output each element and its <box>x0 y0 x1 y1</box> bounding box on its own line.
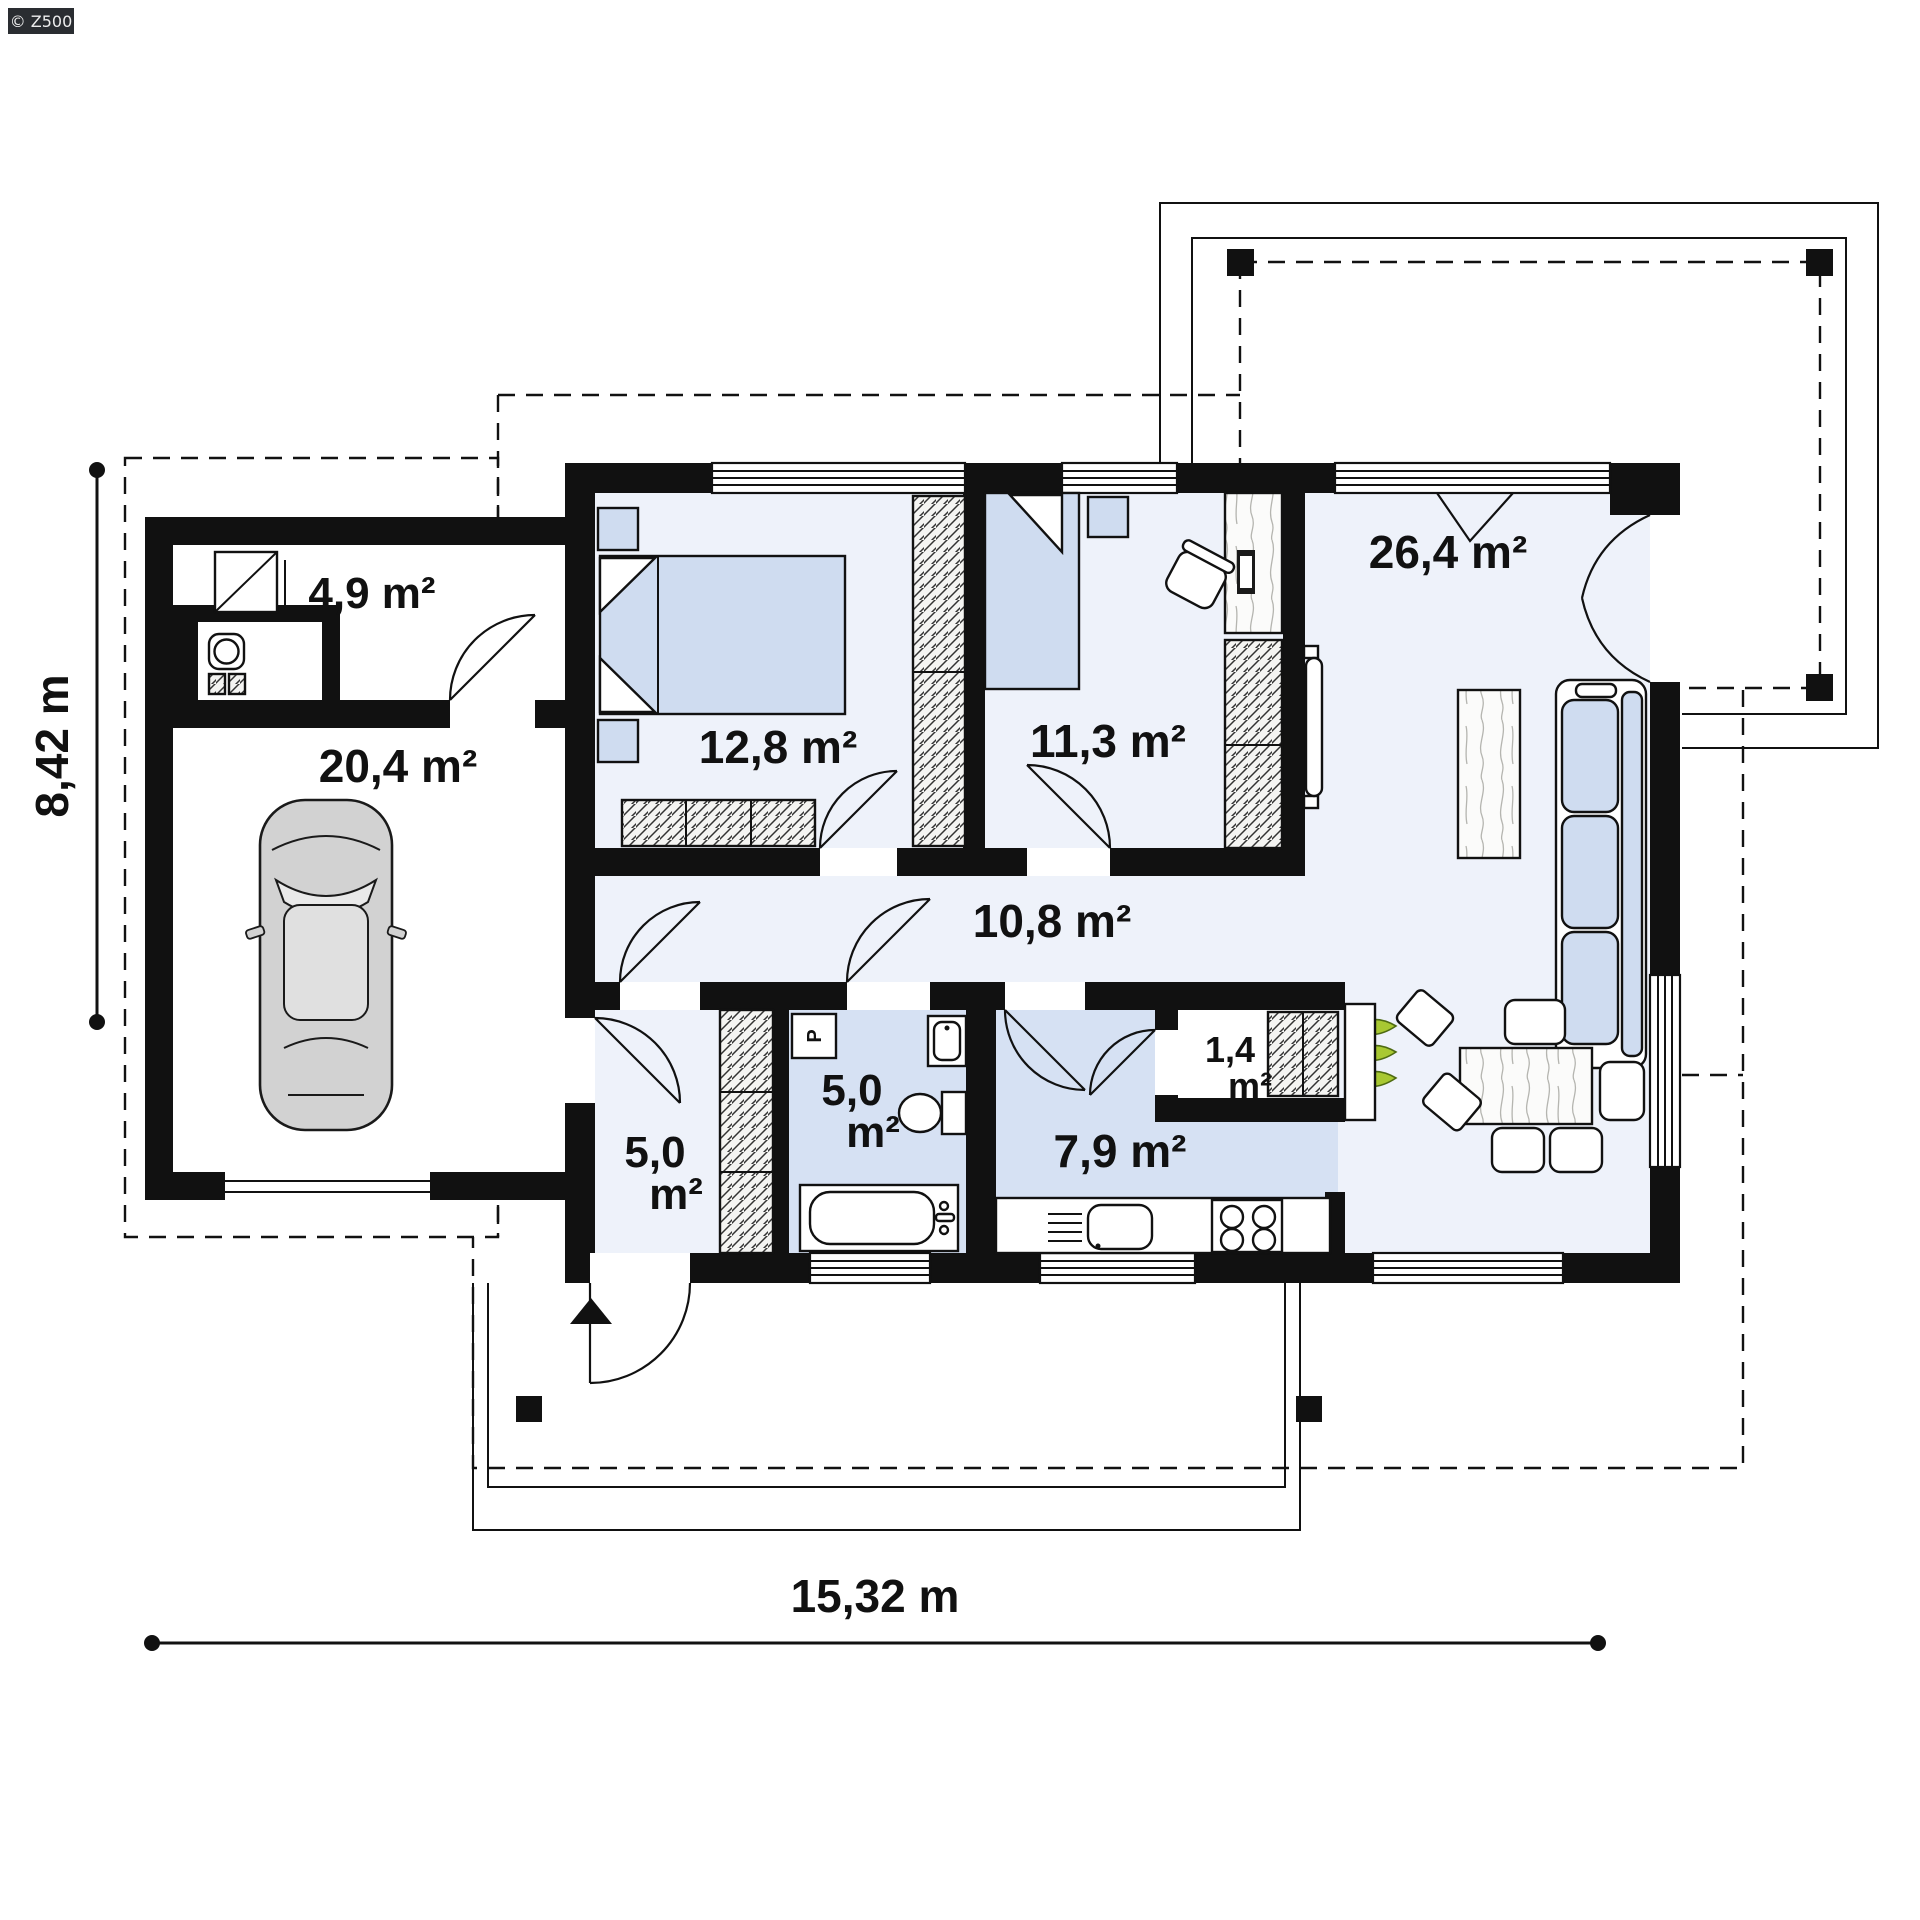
stove-icon <box>1212 1200 1282 1252</box>
corner-window-post <box>1610 493 1678 515</box>
dimension-bottom-label: 15,32 m <box>791 1570 960 1622</box>
terrace-column <box>1227 249 1254 276</box>
room-label-pantry-1: 1,4 <box>1205 1029 1255 1070</box>
garage-wall-top <box>145 517 595 545</box>
bathtub-icon <box>800 1185 958 1251</box>
coffee-table-icon <box>1458 690 1520 858</box>
opening-bedroom-door <box>820 848 897 876</box>
washing-machine-label: P <box>804 1029 826 1042</box>
opening-entrance-door <box>590 1253 690 1283</box>
radiator-icon <box>1304 646 1322 808</box>
room-label-bathroom-2: m² <box>846 1108 900 1157</box>
opening-kitchen-door <box>1005 982 1085 1010</box>
room-label-hall-2: m² <box>649 1170 703 1219</box>
single-bed-icon <box>985 493 1079 689</box>
terrace-column <box>1806 249 1833 276</box>
porch-slab-edge <box>488 1283 1285 1487</box>
sink-icon <box>928 1016 966 1066</box>
dining-window-icon <box>1373 1253 1563 1283</box>
terrace-column <box>1806 674 1833 701</box>
hall-room <box>720 1010 773 1253</box>
opening-garage-gate <box>225 1172 430 1200</box>
porch-column <box>516 1396 542 1422</box>
watermark: © Z500 <box>8 8 74 34</box>
wall-bedroom-office <box>963 493 985 848</box>
opening-bathroom-door <box>847 982 930 1010</box>
room-label-living: 26,4 m² <box>1369 526 1528 578</box>
monitor-icon <box>1237 550 1255 594</box>
dining-chair-icon <box>1600 1062 1644 1120</box>
opening-pantry-door <box>1155 1030 1178 1095</box>
room-label-kitchen: 7,9 m² <box>1054 1125 1187 1177</box>
kitchen-room <box>996 1198 1330 1253</box>
dining-chair-icon <box>1492 1128 1544 1172</box>
watermark-label: © Z500 <box>10 12 73 31</box>
meter-icon <box>209 674 225 694</box>
opening-utility-door <box>450 700 535 728</box>
boiler-icon <box>209 634 244 669</box>
office-window-icon <box>1062 463 1177 493</box>
opening-office-door <box>1027 848 1110 876</box>
wardrobe-icon <box>720 1010 773 1253</box>
dining-chair-icon <box>1505 1000 1565 1044</box>
wall-bathroom-kitchen <box>966 1010 996 1253</box>
bedroom-window-icon <box>712 463 965 493</box>
room-label-pantry-2: m² <box>1228 1065 1272 1106</box>
utility-skylight-icon <box>215 552 285 612</box>
dimension-left: 8,42 m <box>26 462 105 1030</box>
car-icon <box>245 800 407 1130</box>
floor-plan-page: P <box>0 0 1920 1920</box>
meter-icon <box>229 674 245 694</box>
toilet-icon <box>899 1092 966 1134</box>
room-label-bedroom: 12,8 m² <box>699 721 858 773</box>
porch-column <box>1296 1396 1322 1422</box>
living-side-window-icon <box>1650 975 1680 1167</box>
washing-machine-icon: P <box>792 1014 836 1058</box>
wardrobe-icon <box>622 800 815 846</box>
opening-garage-hall-door <box>565 1018 595 1103</box>
opening-hall-door <box>620 982 700 1010</box>
kitchen-window-icon <box>1040 1253 1195 1283</box>
dimension-bottom: 15,32 m <box>144 1570 1606 1651</box>
entrance-arrow-icon <box>570 1298 612 1324</box>
dining-chair-icon <box>1550 1128 1602 1172</box>
room-label-corridor: 10,8 m² <box>973 895 1132 947</box>
opening-french-door <box>1650 515 1680 682</box>
bathroom-window-icon <box>810 1253 930 1283</box>
nightstand-icon <box>1088 497 1128 537</box>
dining-table-icon <box>1460 1048 1592 1124</box>
double-bed-icon <box>600 556 845 714</box>
pantry-panel <box>1345 1004 1375 1120</box>
entrance-door-arc <box>590 1283 690 1383</box>
room-label-office: 11,3 m² <box>1030 715 1186 767</box>
dimension-left-label: 8,42 m <box>26 674 78 817</box>
nightstand-icon <box>598 508 638 550</box>
house-wall-left <box>565 463 595 1283</box>
wall-hall-bathroom <box>773 1010 789 1253</box>
sofa-icon <box>1556 680 1646 1068</box>
nightstand-icon <box>598 720 638 762</box>
floor-plan-drawing: P <box>0 0 1920 1920</box>
wall-office-living <box>1283 493 1305 848</box>
room-label-garage: 20,4 m² <box>319 740 478 792</box>
wall-corridor-top <box>595 848 1305 876</box>
garage-wall-left <box>145 517 173 1200</box>
room-label-utility: 4,9 m² <box>308 569 435 618</box>
